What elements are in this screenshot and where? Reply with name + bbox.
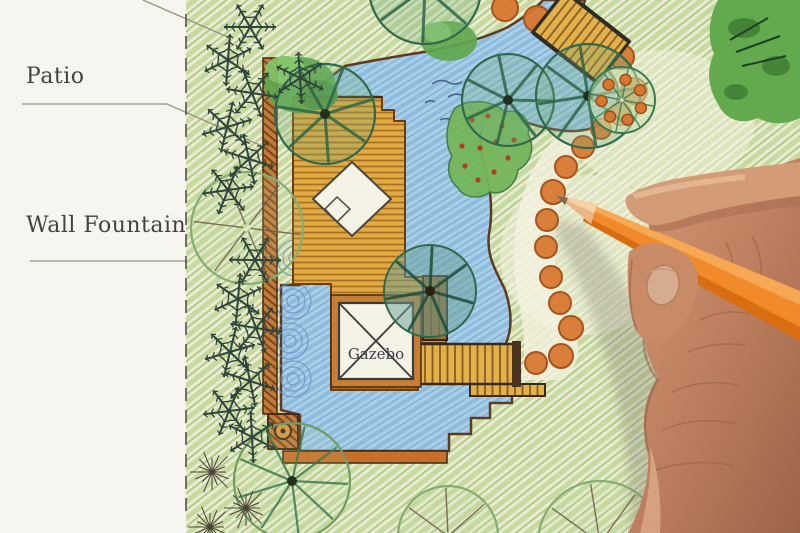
- berry: [462, 163, 467, 168]
- fruit: [596, 95, 607, 106]
- photo-of-landscape-plan: Gazebo Patio Wall Fountain: [0, 0, 800, 533]
- stepping-stone: [525, 352, 547, 374]
- landscape-plan-drawing: Gazebo Patio Wall Fountain: [0, 0, 800, 533]
- tree-center: [287, 476, 297, 486]
- stepping-stone: [559, 316, 583, 340]
- stepping-stone: [555, 156, 577, 178]
- stepping-stone: [549, 344, 573, 368]
- fruit: [622, 114, 633, 125]
- wall-fountain-label: Wall Fountain: [26, 213, 186, 238]
- fruit: [635, 102, 646, 113]
- boardwalk-post: [512, 341, 521, 387]
- gazebo-label: Gazebo: [348, 345, 404, 363]
- tree-center: [425, 286, 435, 296]
- patio-label: Patio: [26, 64, 85, 89]
- stepping-stone: [536, 209, 558, 231]
- berry: [491, 169, 496, 174]
- stepping-stone: [540, 266, 562, 288]
- shrub-top-right: [709, 0, 800, 123]
- tree-center: [503, 95, 513, 105]
- tree: [191, 172, 303, 284]
- berry: [459, 143, 464, 148]
- stepping-stone: [549, 292, 571, 314]
- stepping-stone: [535, 236, 557, 258]
- boardwalk: [418, 344, 518, 384]
- fruit: [603, 79, 614, 90]
- deck-step: [470, 384, 545, 396]
- stepping-stone: [492, 0, 518, 21]
- tree: [589, 67, 655, 133]
- tree: [384, 245, 476, 337]
- fruit: [634, 85, 645, 96]
- berry: [505, 155, 510, 160]
- tree-center: [320, 109, 330, 119]
- fruit: [620, 74, 631, 85]
- fruit: [605, 111, 616, 122]
- berry: [475, 177, 480, 182]
- berry: [477, 145, 482, 150]
